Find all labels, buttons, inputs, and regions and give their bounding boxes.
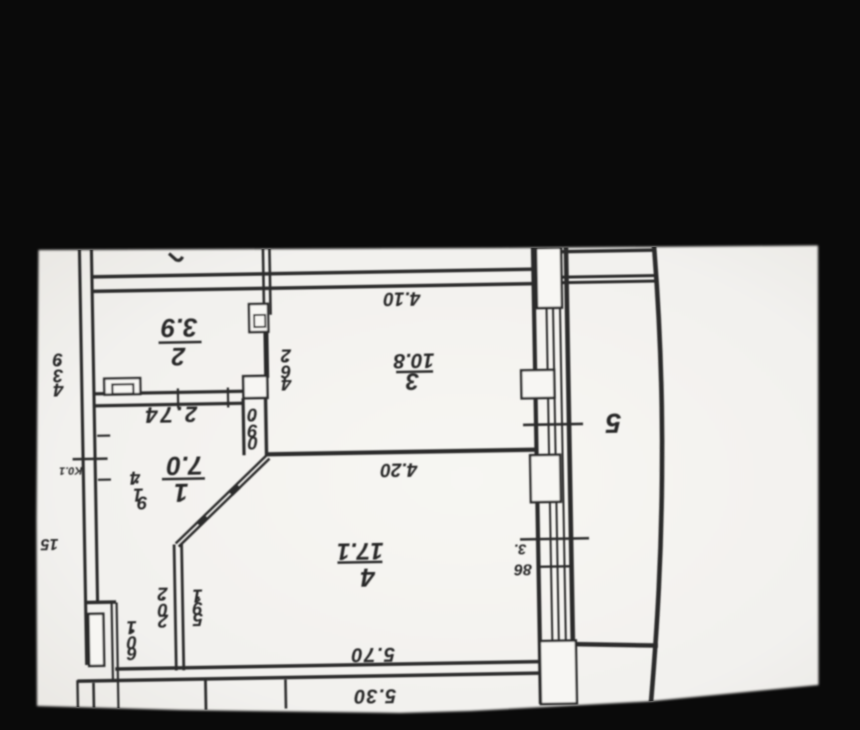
svg-text:1: 1 — [174, 478, 189, 508]
svg-text:5: 5 — [192, 609, 203, 630]
svg-text:2.74: 2.74 — [142, 402, 198, 428]
svg-text:5.70: 5.70 — [350, 642, 395, 665]
svg-text:7.0: 7.0 — [166, 451, 203, 482]
svg-text:4.10: 4.10 — [383, 287, 422, 309]
svg-text:2: 2 — [157, 610, 169, 631]
svg-text:15: 15 — [39, 535, 58, 552]
svg-text:4: 4 — [53, 379, 65, 400]
svg-text:K0.1: K0.1 — [59, 464, 82, 476]
svg-text:17.1: 17.1 — [337, 537, 384, 565]
svg-text:86: 86 — [514, 560, 532, 577]
svg-text:4.20: 4.20 — [380, 458, 419, 480]
svg-text:5.30: 5.30 — [353, 684, 396, 707]
svg-text:3: 3 — [405, 367, 419, 394]
svg-text:9: 9 — [136, 492, 147, 513]
svg-text:4: 4 — [281, 373, 293, 394]
svg-text:6: 6 — [126, 643, 137, 664]
svg-text:4: 4 — [360, 563, 377, 593]
svg-text:5: 5 — [605, 408, 622, 439]
svg-text:2: 2 — [171, 342, 186, 370]
svg-text:0: 0 — [247, 432, 258, 453]
svg-text:3.: 3. — [514, 540, 527, 557]
svg-text:3.9: 3.9 — [160, 313, 197, 344]
